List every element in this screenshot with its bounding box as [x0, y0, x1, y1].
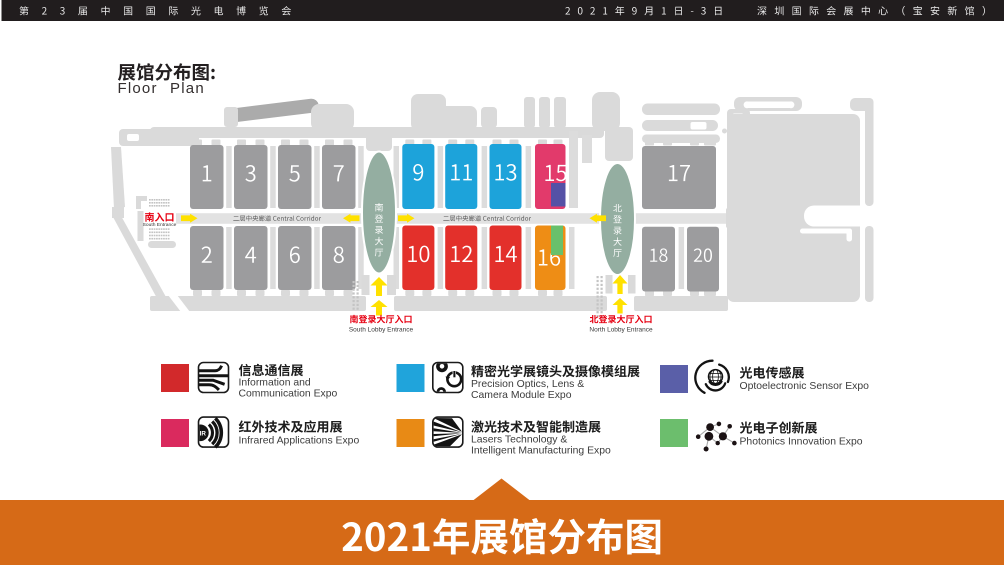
svg-text:Camera Module Expo: Camera Module Expo: [471, 390, 572, 401]
svg-text:Precision Optics, Lens &: Precision Optics, Lens &: [471, 379, 584, 390]
svg-text:Communication Expo: Communication Expo: [239, 389, 338, 400]
svg-text:North Lobby Entrance: North Lobby Entrance: [589, 327, 653, 334]
svg-text:IR: IR: [200, 430, 207, 437]
svg-text:Floor Plan: Floor Plan: [118, 80, 205, 97]
svg-text:Lasers Technology &: Lasers Technology &: [471, 435, 567, 446]
svg-text:Intelligent Manufacturing Expo: Intelligent Manufacturing Expo: [471, 446, 611, 457]
svg-text:Information and: Information and: [239, 378, 311, 389]
svg-text:South Lobby Entrance: South Lobby Entrance: [349, 327, 414, 334]
svg-text:Optoelectronic Sensor Expo: Optoelectronic Sensor Expo: [740, 381, 870, 392]
svg-text:South Entrance: South Entrance: [143, 222, 177, 228]
svg-text:Photonics Innovation Expo: Photonics Innovation Expo: [740, 437, 863, 448]
svg-text:Infrared Applications Expo: Infrared Applications Expo: [239, 436, 360, 447]
